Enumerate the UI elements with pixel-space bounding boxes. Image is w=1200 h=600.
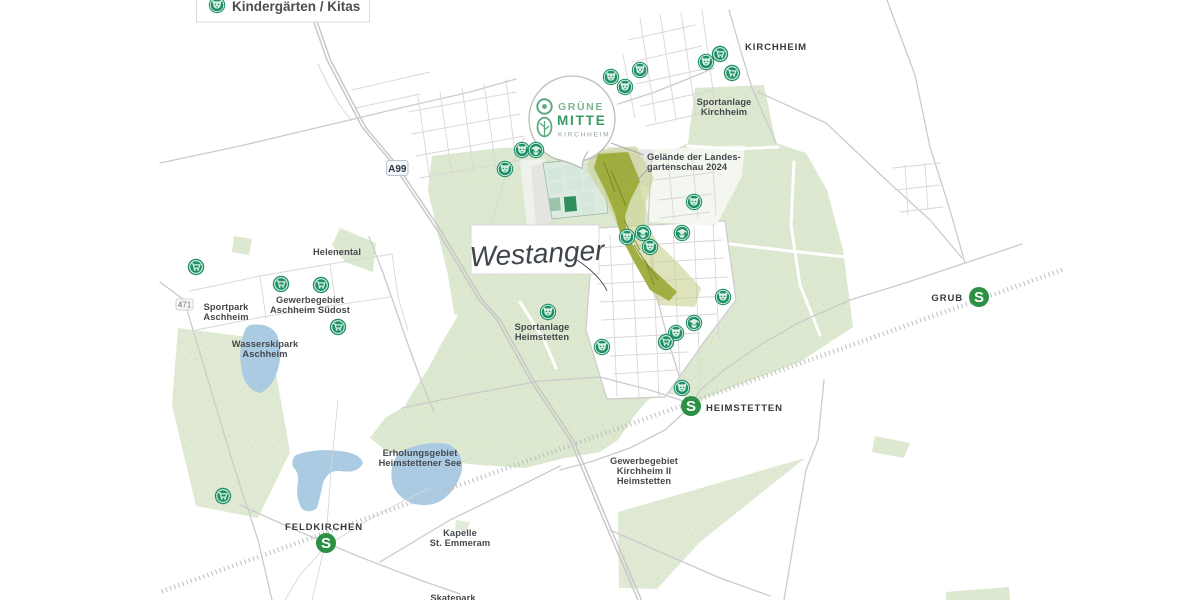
svg-text:Aschheim: Aschheim: [242, 349, 287, 359]
svg-text:Sportanlage: Sportanlage: [697, 97, 752, 107]
svg-text:Wasserskipark: Wasserskipark: [232, 339, 299, 349]
svg-text:HEIMSTETTEN: HEIMSTETTEN: [706, 403, 783, 414]
svg-text:Kindergärten / Kitas: Kindergärten / Kitas: [232, 0, 360, 14]
svg-text:Gewerbegebiet: Gewerbegebiet: [276, 295, 344, 305]
svg-text:GRUB: GRUB: [931, 293, 963, 304]
svg-text:Helenental: Helenental: [313, 247, 361, 257]
svg-text:Kapelle: Kapelle: [443, 528, 477, 538]
svg-text:Heimstetten: Heimstetten: [617, 476, 672, 486]
svg-text:Gelände der Landes-: Gelände der Landes-: [647, 152, 741, 162]
svg-text:KIRCHHEIM: KIRCHHEIM: [745, 42, 807, 53]
svg-text:Aschheim: Aschheim: [203, 312, 248, 322]
svg-text:GRÜNE: GRÜNE: [558, 100, 604, 113]
svg-text:MITTE: MITTE: [557, 113, 607, 128]
svg-text:KIRCHHEIM: KIRCHHEIM: [558, 132, 610, 139]
svg-text:Sportanlage: Sportanlage: [515, 322, 570, 332]
svg-text:FELDKIRCHEN: FELDKIRCHEN: [285, 522, 363, 533]
svg-text:St. Emmeram: St. Emmeram: [430, 538, 491, 548]
svg-text:Kirchheim: Kirchheim: [701, 107, 747, 117]
svg-text:Sportpark: Sportpark: [204, 302, 250, 312]
svg-text:Erholungsgebiet: Erholungsgebiet: [383, 448, 458, 458]
svg-text:Aschheim Südost: Aschheim Südost: [270, 305, 350, 315]
svg-text:Heimstetten: Heimstetten: [515, 332, 570, 342]
svg-text:471: 471: [178, 301, 192, 310]
svg-text:A99: A99: [388, 164, 407, 175]
svg-text:Heimstettener See: Heimstettener See: [379, 458, 462, 468]
svg-text:Kirchheim II: Kirchheim II: [617, 466, 671, 476]
svg-text:Gewerbegebiet: Gewerbegebiet: [610, 456, 678, 466]
svg-text:Skatepark: Skatepark: [430, 593, 476, 600]
svg-text:gartenschau 2024: gartenschau 2024: [647, 162, 728, 172]
